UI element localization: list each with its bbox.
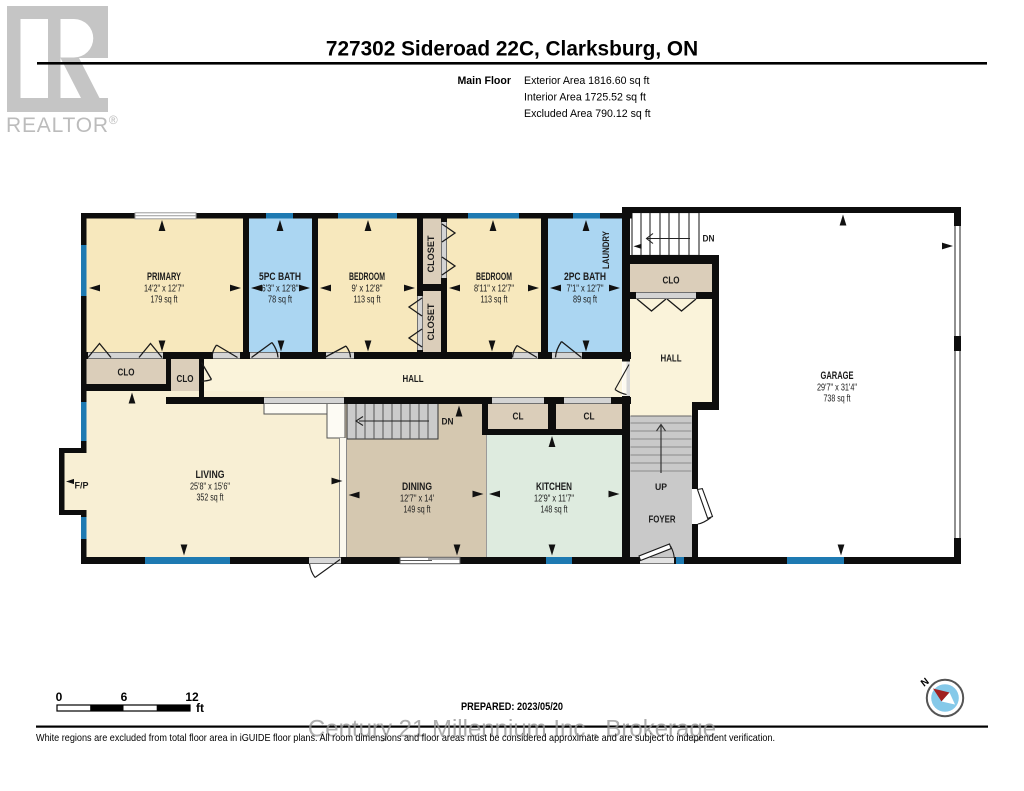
svg-text:UP: UP (655, 482, 668, 493)
svg-text:148 sq ft: 148 sq ft (541, 505, 568, 516)
svg-text:KITCHEN: KITCHEN (536, 481, 572, 493)
svg-text:HALL: HALL (661, 354, 682, 365)
svg-text:Interior Area 1725.52 sq ft: Interior Area 1725.52 sq ft (524, 92, 646, 104)
svg-text:CLOSET: CLOSET (426, 235, 436, 272)
svg-text:2PC BATH: 2PC BATH (564, 271, 606, 283)
svg-text:Excluded Area 790.12 sq ft: Excluded Area 790.12 sq ft (524, 108, 651, 120)
svg-text:PRIMARY: PRIMARY (147, 271, 181, 283)
svg-text:CLO: CLO (118, 368, 135, 379)
svg-text:0: 0 (56, 690, 63, 704)
svg-text:DINING: DINING (402, 481, 432, 493)
svg-text:DN: DN (442, 417, 454, 428)
svg-text:7'1" x 12'7": 7'1" x 12'7" (567, 283, 604, 294)
svg-text:LIVING: LIVING (196, 469, 225, 481)
svg-text:12'9" x 11'7": 12'9" x 11'7" (534, 493, 574, 504)
svg-text:78 sq ft: 78 sq ft (268, 295, 292, 306)
svg-text:LAUNDRY: LAUNDRY (600, 230, 611, 269)
svg-text:White regions are excluded fro: White regions are excluded from total fl… (36, 733, 775, 744)
svg-text:CLOSET: CLOSET (426, 303, 436, 340)
svg-text:PREPARED: 2023/05/20: PREPARED: 2023/05/20 (461, 701, 563, 713)
svg-text:GARAGE: GARAGE (821, 370, 854, 382)
svg-text:179 sq ft: 179 sq ft (151, 295, 178, 306)
svg-text:FOYER: FOYER (649, 515, 676, 526)
svg-text:Main Floor: Main Floor (457, 75, 511, 87)
svg-text:6'3" x 12'8": 6'3" x 12'8" (262, 283, 299, 294)
svg-text:BEDROOM: BEDROOM (476, 271, 512, 283)
svg-text:89 sq ft: 89 sq ft (573, 295, 597, 306)
svg-text:113 sq ft: 113 sq ft (481, 295, 508, 306)
svg-text:5PC BATH: 5PC BATH (259, 271, 301, 283)
svg-text:14'2" x 12'7": 14'2" x 12'7" (144, 283, 184, 294)
svg-text:352 sq ft: 352 sq ft (197, 493, 224, 504)
svg-text:727302 Sideroad 22C, Clarksbur: 727302 Sideroad 22C, Clarksburg, ON (326, 38, 698, 61)
svg-text:BEDROOM: BEDROOM (349, 271, 385, 283)
svg-text:6: 6 (121, 690, 128, 704)
svg-text:29'7" x 31'4": 29'7" x 31'4" (817, 382, 857, 393)
svg-text:25'8" x 15'6": 25'8" x 15'6" (190, 481, 230, 492)
svg-text:12'7" x 14': 12'7" x 14' (400, 493, 434, 504)
svg-text:738 sq ft: 738 sq ft (824, 394, 851, 405)
svg-text:F/P: F/P (75, 481, 89, 491)
svg-text:149 sq ft: 149 sq ft (404, 505, 431, 516)
svg-text:8'11" x 12'7": 8'11" x 12'7" (474, 283, 514, 294)
svg-text:113 sq ft: 113 sq ft (354, 295, 381, 306)
svg-text:ft: ft (196, 701, 204, 715)
svg-text:CL: CL (513, 412, 524, 423)
svg-text:9' x 12'8": 9' x 12'8" (352, 283, 383, 294)
svg-text:CL: CL (584, 412, 595, 423)
svg-text:REALTOR®: REALTOR® (6, 113, 119, 137)
svg-text:CLO: CLO (177, 374, 194, 385)
svg-text:CLO: CLO (663, 276, 680, 287)
svg-text:DN: DN (703, 234, 715, 245)
svg-text:HALL: HALL (403, 374, 424, 385)
svg-text:Exterior Area 1816.60 sq ft: Exterior Area 1816.60 sq ft (524, 75, 649, 87)
